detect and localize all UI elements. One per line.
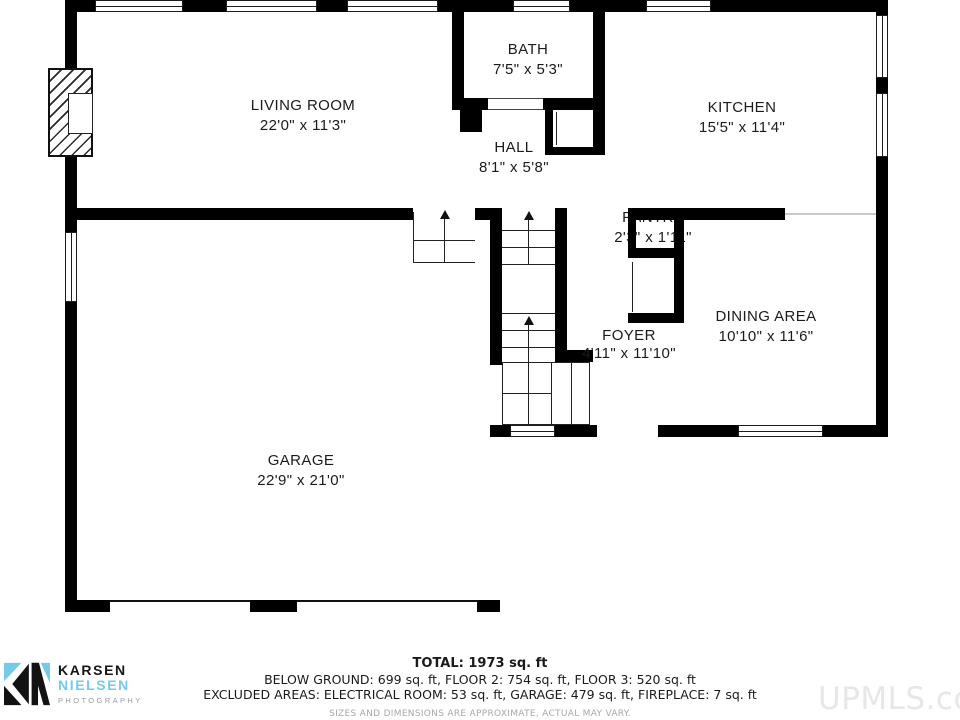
footer-excluded-areas: EXCLUDED AREAS: ELECTRICAL ROOM: 53 sq. … bbox=[0, 687, 960, 702]
fireplace-symbol bbox=[48, 68, 93, 157]
room-name: KITCHEN bbox=[699, 98, 785, 118]
logo-line2: NIELSEN bbox=[58, 678, 143, 693]
window-symbol bbox=[646, 0, 711, 12]
window-symbol bbox=[738, 425, 823, 437]
window-symbol bbox=[510, 425, 555, 437]
room-dims: 22'9" x 21'0" bbox=[257, 471, 344, 491]
footer-total: TOTAL: 1973 sq. ft bbox=[0, 656, 960, 671]
room-label-foyer: FOYER 4'11" x 11'10" bbox=[582, 327, 676, 363]
logo-line3: PHOTOGRAPHY bbox=[58, 695, 143, 706]
room-dims: 10'10" x 11'6" bbox=[715, 327, 816, 347]
door-jamb-closet bbox=[556, 112, 557, 145]
watermark: UPMLS.com bbox=[818, 681, 960, 717]
entry-step-line bbox=[502, 393, 551, 394]
wall-chimney-stub bbox=[460, 104, 482, 132]
window-symbol bbox=[876, 15, 888, 78]
room-name: FOYER bbox=[582, 327, 676, 345]
stair-up-arrow bbox=[524, 316, 534, 325]
room-label-garage: GARAGE 22'9" x 21'0" bbox=[257, 451, 344, 491]
room-dims: 22'0" x 11'3" bbox=[251, 116, 355, 136]
wall-bath-left bbox=[452, 12, 464, 110]
stair-up-arrow bbox=[440, 210, 450, 219]
wall-pantry-top bbox=[628, 208, 785, 220]
room-name: BATH bbox=[493, 40, 563, 60]
room-dims: 8'1" x 5'8" bbox=[479, 158, 549, 178]
wall-pantry-right bbox=[674, 208, 684, 323]
firebox bbox=[68, 93, 93, 134]
room-dims: 4'11" x 11'10" bbox=[582, 345, 676, 363]
stair-tread bbox=[502, 313, 555, 314]
wall-stair-east bbox=[555, 208, 567, 362]
room-name: DINING AREA bbox=[715, 307, 816, 327]
wall-stair-west bbox=[490, 208, 502, 365]
kn-logo-icon bbox=[4, 660, 50, 708]
window-symbol bbox=[65, 232, 77, 302]
garage-door-opening bbox=[297, 600, 477, 612]
wall-bath-right bbox=[593, 12, 605, 155]
room-label-kitchen: KITCHEN 15'5" x 11'4" bbox=[699, 98, 785, 138]
window-symbol bbox=[95, 0, 183, 12]
room-dims: 7'5" x 5'3" bbox=[493, 60, 563, 80]
door-opening-bath bbox=[488, 98, 543, 110]
wall-pantry-bottom bbox=[628, 313, 684, 323]
room-label-living-room: LIVING ROOM 22'0" x 11'3" bbox=[251, 96, 355, 136]
stair-direction-line bbox=[444, 218, 445, 262]
room-dims: 15'5" x 11'4" bbox=[699, 118, 785, 138]
window-symbol bbox=[513, 0, 570, 12]
stair-up-arrow bbox=[524, 211, 534, 220]
room-name: HALL bbox=[479, 138, 549, 158]
room-name: LIVING ROOM bbox=[251, 96, 355, 116]
room-label-dining-area: DINING AREA 10'10" x 11'6" bbox=[715, 307, 816, 347]
footer-disclaimer: SIZES AND DIMENSIONS ARE APPROXIMATE, AC… bbox=[0, 709, 960, 719]
wall-pantry-divider bbox=[628, 248, 675, 258]
window-symbol bbox=[876, 93, 888, 157]
garage-door-opening bbox=[110, 600, 250, 612]
kitchen-dining-boundary bbox=[785, 213, 876, 215]
logo-text: KARSEN NIELSEN PHOTOGRAPHY bbox=[58, 663, 143, 706]
room-label-hall: HALL 8'1" x 5'8" bbox=[479, 138, 549, 178]
wall-top bbox=[65, 0, 888, 12]
wall-mid bbox=[65, 208, 413, 220]
entry-step-line bbox=[571, 362, 572, 425]
window-symbol bbox=[347, 0, 438, 12]
window-symbol bbox=[226, 0, 317, 12]
photographer-logo: KARSEN NIELSEN PHOTOGRAPHY bbox=[4, 660, 143, 708]
floorplan-canvas: { "rooms": [ {"name": "LIVING ROOM", "di… bbox=[0, 0, 960, 720]
entry-step-line bbox=[551, 362, 552, 425]
logo-line1: KARSEN bbox=[58, 663, 143, 678]
stair-tread bbox=[502, 264, 555, 265]
stair-direction-line bbox=[528, 219, 529, 264]
room-label-bath: BATH 7'5" x 5'3" bbox=[493, 40, 563, 80]
footer-floor-areas: BELOW GROUND: 699 sq. ft, FLOOR 2: 754 s… bbox=[0, 672, 960, 687]
door-jamb-pantry bbox=[632, 262, 633, 312]
room-name: GARAGE bbox=[257, 451, 344, 471]
